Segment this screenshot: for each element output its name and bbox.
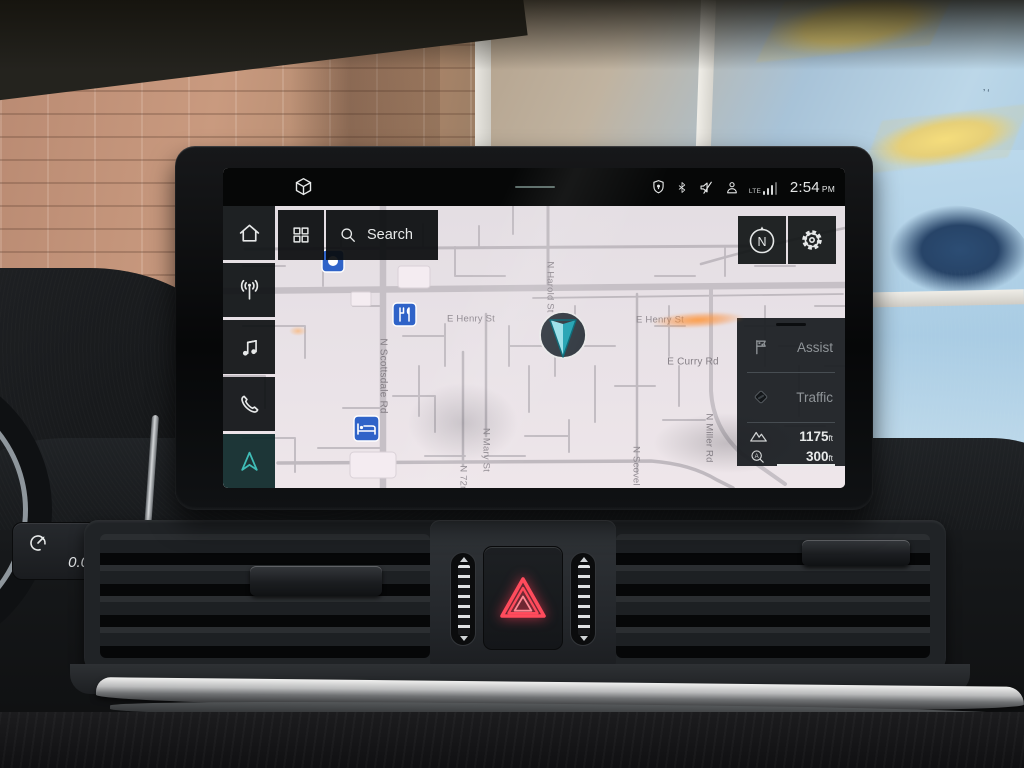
privacy-location-icon <box>650 178 667 196</box>
street-label: E Curry Rd <box>667 357 718 368</box>
vehicle-location-puck <box>540 312 586 358</box>
car-interior-photo: ’‘ 0.0 <box>0 0 1024 768</box>
traffic-label: Traffic <box>796 390 833 405</box>
elevation-unit: ft <box>829 434 833 443</box>
windshield-top-shade <box>0 0 1024 70</box>
map-scale-readout[interactable]: A 300ft <box>737 446 845 466</box>
search-label: Search <box>367 227 413 243</box>
sidebar-item-radio[interactable] <box>223 263 275 317</box>
profile-icon <box>724 179 740 196</box>
svg-text:A: A <box>755 453 759 459</box>
compass-label: N <box>757 235 766 249</box>
grid-icon <box>290 224 312 246</box>
status-bar: LTE 2:54PM <box>223 168 845 206</box>
search-icon <box>338 225 358 245</box>
compass-button[interactable]: N <box>738 216 786 264</box>
sidebar-item-media[interactable] <box>223 320 275 374</box>
wood-trim <box>0 712 1024 768</box>
sidebar-item-phone[interactable] <box>223 377 275 431</box>
mountain-icon <box>749 429 768 443</box>
right-air-vent <box>616 534 930 658</box>
assist-flag-icon <box>751 337 771 357</box>
panel-divider <box>747 422 835 423</box>
map-buttons: N <box>738 216 836 264</box>
sidebar <box>223 206 275 488</box>
elevation-readout: 1175ft <box>737 426 845 446</box>
street-label: N Mary St <box>481 428 492 472</box>
clock: 2:54PM <box>790 179 835 196</box>
street-label: E Henry St <box>447 314 495 325</box>
apps-grid-button[interactable] <box>278 210 324 260</box>
infotainment-screen: E Henry St E Henry St N Harold St E Curr… <box>175 146 873 510</box>
sound-muted-icon <box>697 179 715 196</box>
gauge-icon <box>27 532 49 554</box>
assist-panel: Assist Traffic <box>737 318 845 466</box>
map-settings-button[interactable] <box>788 216 836 264</box>
elevation-value: 1175 <box>799 429 828 444</box>
sidebar-item-navigation[interactable] <box>223 434 275 488</box>
left-thumbwheel[interactable] <box>450 552 476 646</box>
nav-arrow-icon <box>237 449 262 474</box>
gear-icon <box>797 225 827 255</box>
lte-signal-icon: LTE <box>749 179 777 195</box>
street-label: N Scovel St <box>631 446 642 488</box>
street-label: N 72nd Pl <box>458 465 469 488</box>
thumbwheel-strip <box>578 565 590 635</box>
glass-specks: ’‘ <box>983 88 991 99</box>
hazard-button[interactable] <box>483 546 563 650</box>
scale-value: 300 <box>806 449 829 464</box>
assist-button[interactable]: Assist <box>737 324 845 370</box>
poi-marker-restaurant <box>393 303 416 326</box>
home-icon <box>237 221 262 246</box>
traffic-diamond-icon <box>751 387 771 407</box>
lte-label: LTE <box>749 188 761 195</box>
search-row: Search <box>278 210 438 260</box>
street-label: E Henry St <box>636 315 684 326</box>
right-thumbwheel[interactable] <box>570 552 596 646</box>
vent-adjuster-tab[interactable] <box>250 566 382 596</box>
bluetooth-icon <box>676 179 688 196</box>
sidebar-item-home[interactable] <box>223 206 275 260</box>
poi-marker-hotel <box>354 416 379 441</box>
radio-antenna-icon <box>237 278 262 303</box>
hazard-triangle-icon <box>498 575 548 621</box>
left-air-vent <box>100 534 430 658</box>
traffic-button[interactable]: Traffic <box>737 374 845 420</box>
assist-label: Assist <box>797 340 833 355</box>
street-label: N Harold St <box>545 261 556 312</box>
search-button[interactable]: Search <box>326 210 438 260</box>
drag-handle[interactable] <box>515 186 555 188</box>
scale-unit: ft <box>829 454 833 463</box>
phone-icon <box>237 392 262 417</box>
compass-icon: N <box>745 223 779 257</box>
hazard-module <box>430 520 616 672</box>
music-note-icon <box>237 335 262 360</box>
mmi-display: E Henry St E Henry St N Harold St E Curr… <box>223 168 845 488</box>
panel-divider <box>747 372 835 373</box>
scale-bar <box>777 464 835 466</box>
3d-view-icon <box>293 176 314 198</box>
vent-adjuster-tab[interactable] <box>802 540 910 566</box>
center-vent-assembly <box>84 520 946 672</box>
street-label: N Miller Rd <box>704 413 715 462</box>
auto-zoom-icon: A <box>749 448 766 465</box>
street-label: N Scottsdale Rd <box>378 338 389 413</box>
thumbwheel-strip <box>458 565 470 635</box>
